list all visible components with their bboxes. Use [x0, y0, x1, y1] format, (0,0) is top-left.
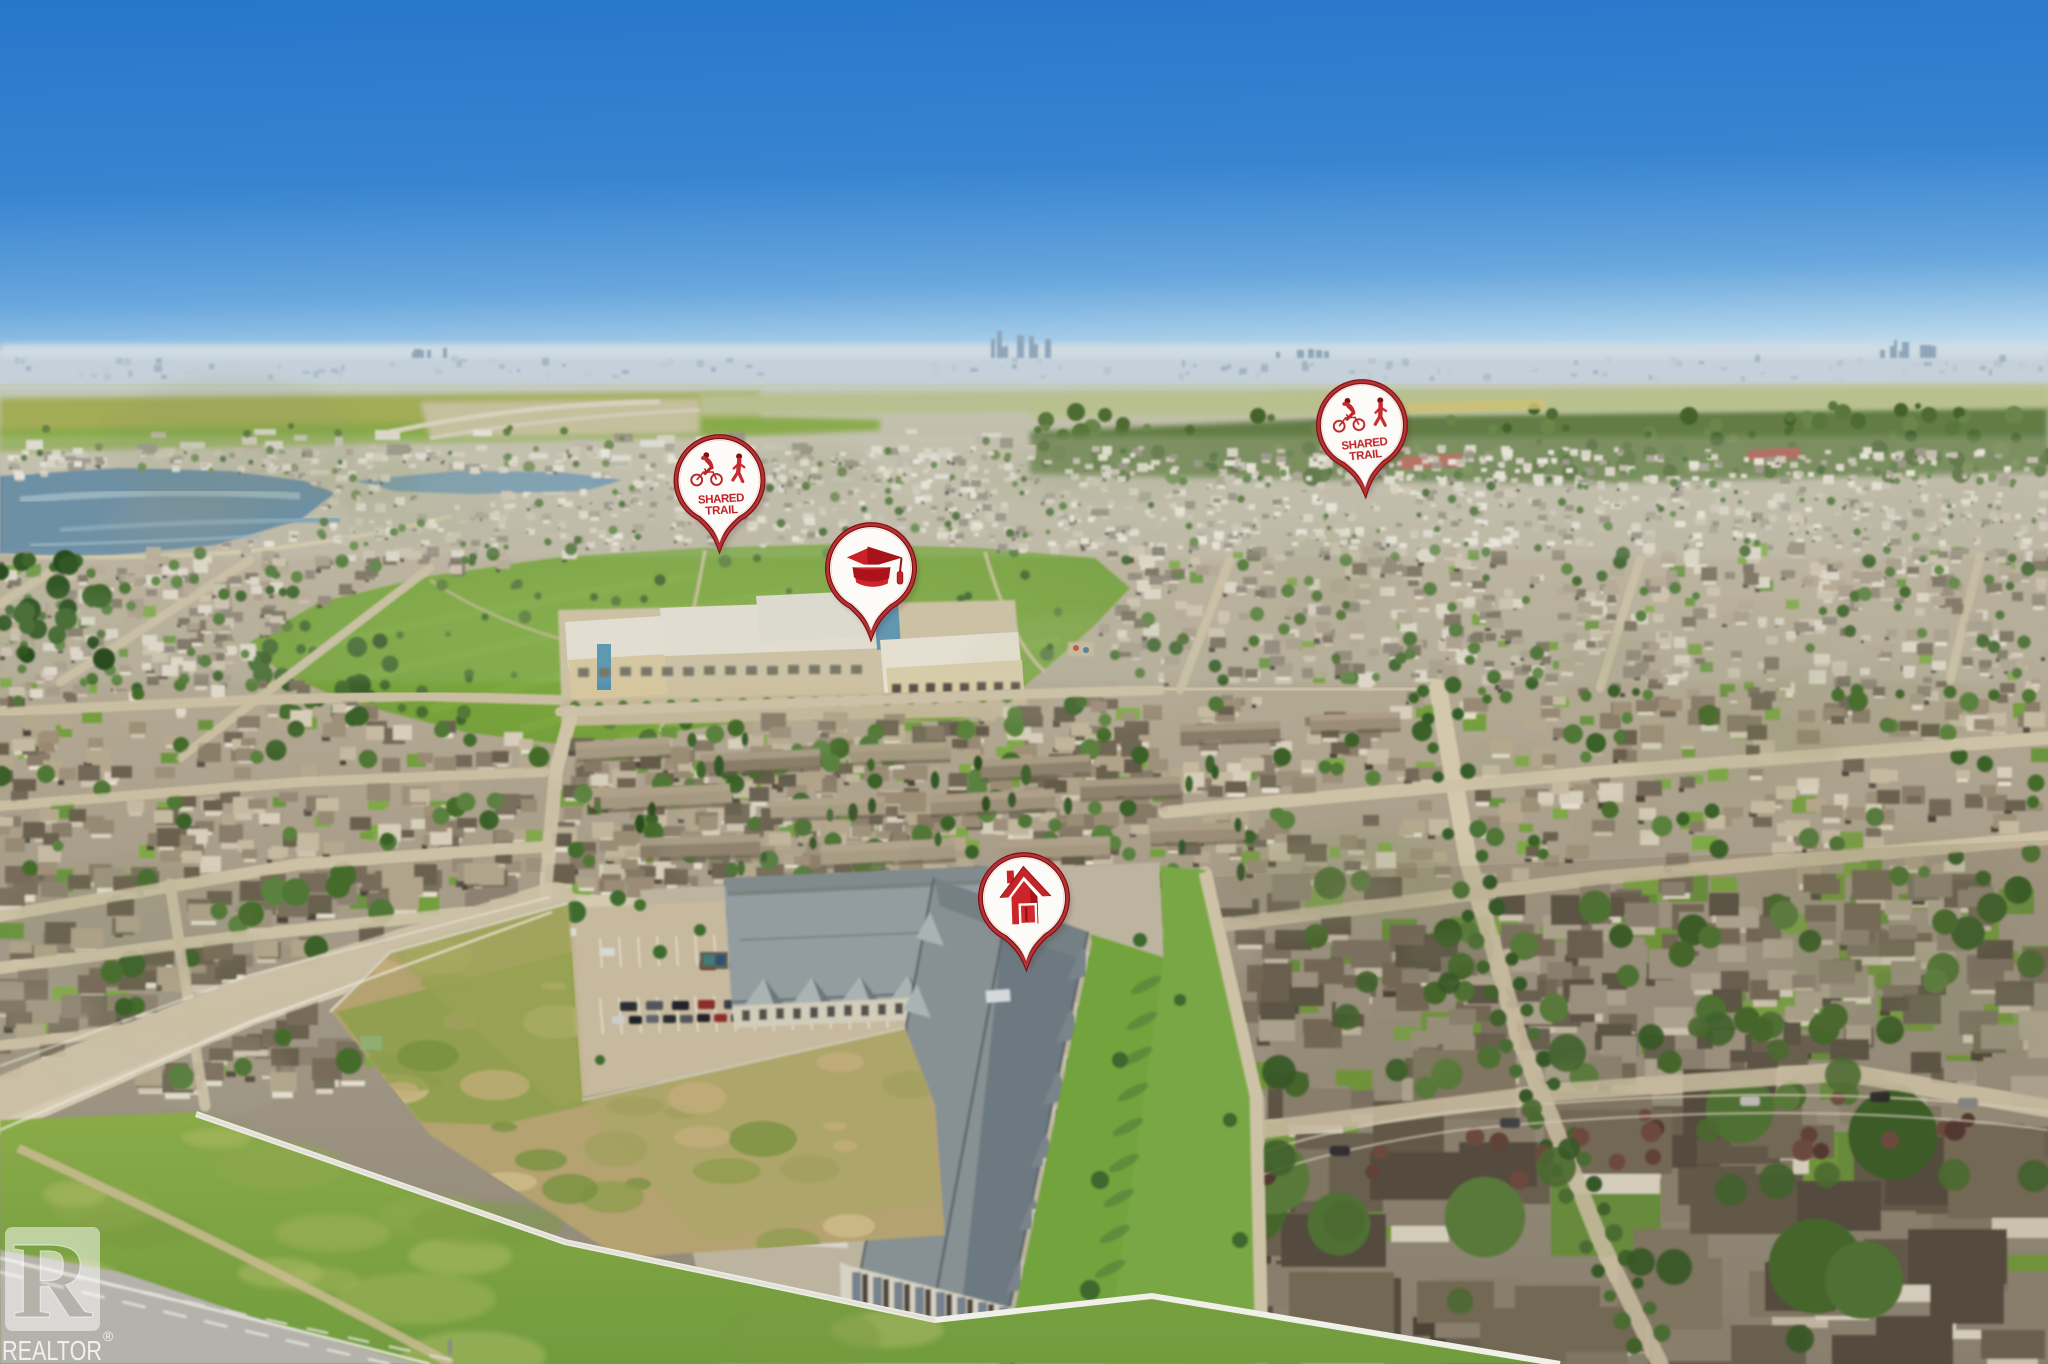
svg-text:REALTOR: REALTOR	[2, 1335, 102, 1364]
svg-text:TRAIL: TRAIL	[705, 503, 738, 518]
svg-text:®: ®	[103, 1328, 114, 1344]
svg-text:R: R	[12, 1219, 93, 1341]
